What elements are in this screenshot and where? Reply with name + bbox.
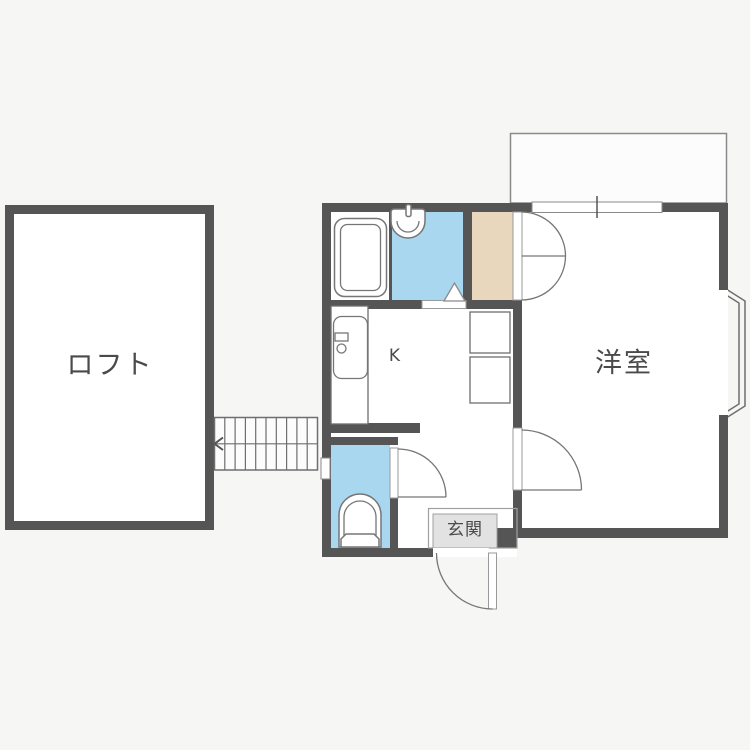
- closet: [472, 212, 513, 300]
- loft-label: ロフト: [35, 351, 185, 381]
- toilet: [339, 494, 381, 547]
- western-room-label: 洋室: [549, 349, 699, 379]
- storage-squares: [470, 312, 510, 403]
- entrance-label: 玄関: [433, 521, 497, 540]
- balcony: [511, 134, 727, 204]
- kitchen-sink: [331, 306, 368, 424]
- stairs: [215, 418, 318, 471]
- wash-basin: [391, 205, 425, 239]
- kitchen-label: K: [375, 347, 415, 366]
- floor-plan-page: { "rooms": { "loft": { "label": "ロフト" },…: [0, 0, 750, 750]
- entrance-door: [437, 553, 497, 609]
- entrance-threshold: [433, 548, 489, 557]
- toilet-window: [321, 458, 330, 479]
- bathtub: [335, 219, 387, 297]
